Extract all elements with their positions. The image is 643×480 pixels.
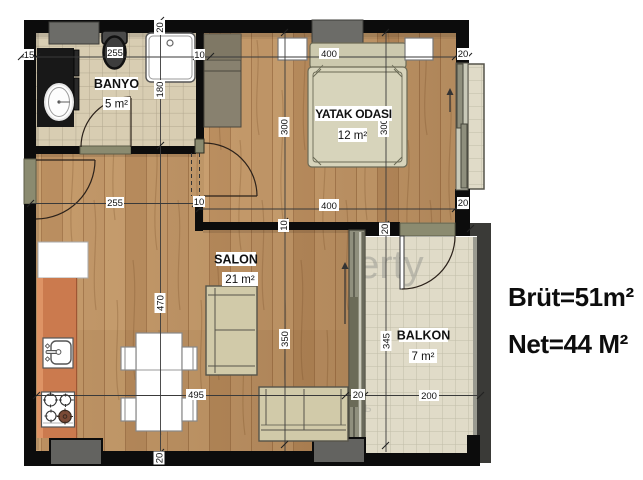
svg-text:200: 200 bbox=[421, 391, 437, 402]
svg-text:10: 10 bbox=[194, 197, 205, 208]
svg-text:SALON: SALON bbox=[214, 253, 258, 267]
svg-text:5 m²: 5 m² bbox=[105, 99, 128, 111]
svg-text:BANYO: BANYO bbox=[94, 77, 139, 91]
svg-text:495: 495 bbox=[188, 390, 204, 401]
svg-text:erty: erty bbox=[357, 243, 424, 287]
svg-text:400: 400 bbox=[321, 49, 337, 60]
svg-text:20: 20 bbox=[458, 198, 469, 209]
svg-text:BALKON: BALKON bbox=[397, 329, 450, 343]
svg-text:12 m²: 12 m² bbox=[338, 130, 368, 142]
svg-text:Brüt=51m²: Brüt=51m² bbox=[508, 282, 634, 312]
svg-text:300: 300 bbox=[280, 119, 291, 135]
svg-text:300: 300 bbox=[379, 119, 390, 135]
svg-text:10: 10 bbox=[279, 220, 290, 231]
svg-text:470: 470 bbox=[156, 295, 167, 311]
svg-text:21 m²: 21 m² bbox=[225, 274, 255, 286]
svg-text:20: 20 bbox=[380, 224, 391, 235]
svg-text:10: 10 bbox=[194, 50, 205, 61]
svg-text:7 m²: 7 m² bbox=[412, 351, 435, 363]
svg-text:YATAK ODASI: YATAK ODASI bbox=[315, 107, 392, 121]
svg-text:20: 20 bbox=[353, 390, 364, 401]
svg-text:255: 255 bbox=[107, 198, 123, 209]
svg-text:20: 20 bbox=[458, 49, 469, 60]
svg-text:350: 350 bbox=[280, 331, 291, 347]
svg-text:20: 20 bbox=[155, 453, 166, 464]
svg-text:Net=44 M²: Net=44 M² bbox=[508, 329, 629, 359]
svg-text:15: 15 bbox=[24, 50, 35, 61]
svg-text:345: 345 bbox=[382, 333, 393, 349]
svg-text:20: 20 bbox=[155, 22, 166, 33]
svg-text:255: 255 bbox=[107, 48, 123, 59]
svg-text:180: 180 bbox=[155, 82, 166, 98]
svg-text:400: 400 bbox=[321, 201, 337, 212]
